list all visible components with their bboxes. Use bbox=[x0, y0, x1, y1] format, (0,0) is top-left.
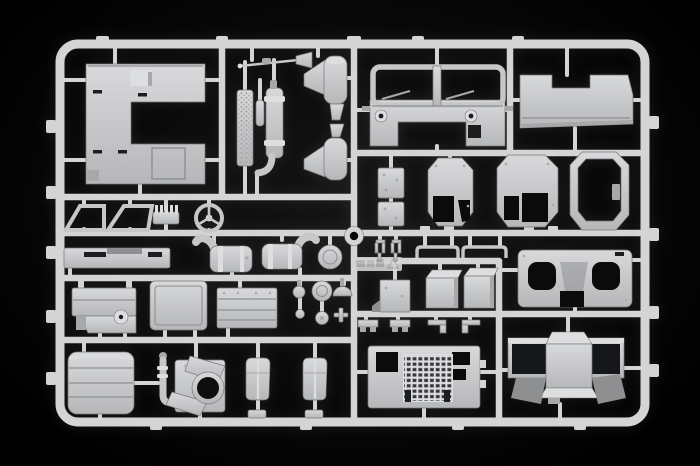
exhaust-stack-lower bbox=[304, 124, 347, 180]
lamp-disc-small bbox=[316, 312, 329, 325]
window-frame-left bbox=[66, 206, 104, 230]
dashboard-panel bbox=[368, 346, 486, 408]
exhaust-muffler bbox=[258, 80, 285, 173]
cab-front-panel bbox=[362, 66, 513, 146]
sprue-photo: Unassembled plastic model kit sprue (inj… bbox=[0, 0, 700, 466]
round-cap-small bbox=[293, 280, 305, 298]
fender-panel bbox=[518, 250, 632, 307]
equipment-door-panel bbox=[150, 276, 207, 330]
battery-box-small bbox=[372, 280, 410, 312]
fuel-tank bbox=[72, 280, 136, 333]
winch-fan-assembly bbox=[157, 352, 225, 416]
step-brackets bbox=[358, 320, 480, 333]
radiator-ribbed-box bbox=[68, 352, 134, 414]
small-cylinder bbox=[256, 100, 264, 126]
air-cleaner-right bbox=[262, 237, 316, 269]
steering-wheel bbox=[196, 205, 222, 231]
stowage-box bbox=[217, 288, 277, 328]
headlight-disc bbox=[318, 245, 342, 269]
hinge-plate-lower bbox=[378, 202, 404, 226]
cross-fitting bbox=[334, 308, 348, 322]
sprue-illustration: Unassembled plastic model kit sprue (inj… bbox=[0, 0, 700, 466]
pin-ball-small bbox=[296, 310, 305, 319]
sprue-locator-ring bbox=[345, 227, 364, 246]
battery-box-large bbox=[464, 268, 498, 308]
finned-engine-part bbox=[153, 205, 179, 224]
hinge-plate-upper bbox=[378, 168, 404, 198]
cab-roof-panel bbox=[86, 64, 205, 184]
mirror-arm-left bbox=[417, 247, 458, 258]
round-cap-large bbox=[312, 281, 332, 301]
battery-box-mid bbox=[426, 270, 462, 308]
cab-rear-panel bbox=[520, 75, 633, 128]
front-bumper-bar bbox=[64, 248, 170, 268]
door-panel-large bbox=[497, 155, 558, 227]
cab-floor-assembly bbox=[508, 332, 626, 404]
window-frame-right bbox=[108, 206, 152, 230]
door-panel-small bbox=[428, 158, 473, 226]
mirror-arm-right bbox=[463, 247, 506, 258]
tread-plate-strip bbox=[237, 90, 253, 166]
door-frame-open bbox=[570, 152, 629, 230]
air-cleaner-left bbox=[196, 238, 252, 272]
